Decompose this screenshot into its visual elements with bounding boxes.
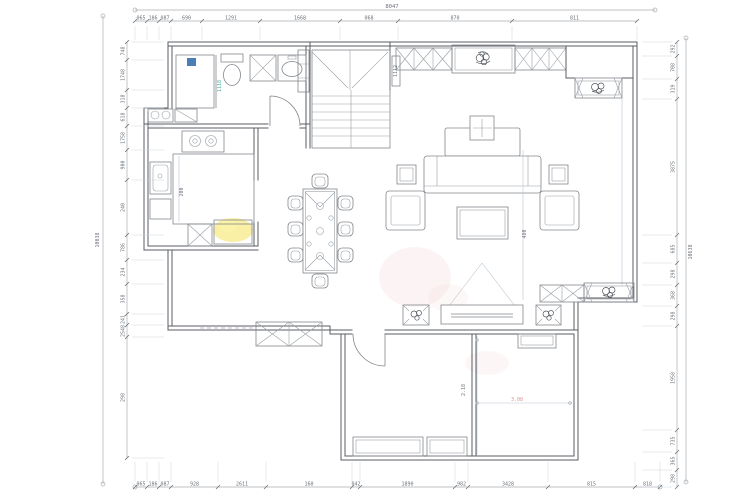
dim-label: 292 <box>671 44 677 53</box>
dim-label: 815 <box>587 482 596 488</box>
dim-label: 735 <box>671 436 677 445</box>
toilet-icon <box>221 54 243 86</box>
dim-label: 318 <box>121 94 127 103</box>
dim-label: 186 <box>148 482 157 488</box>
kitchen-cabinet-x <box>188 224 212 246</box>
armchair <box>386 191 425 230</box>
kitchen-sink-icon <box>150 162 171 194</box>
dim-label: 870 <box>450 16 459 22</box>
highlight-yellow <box>213 218 253 242</box>
laundry-pair-icon <box>148 109 197 122</box>
walls <box>144 42 637 460</box>
dim-label: 065 <box>136 482 145 488</box>
dim-label: 241 <box>121 315 127 324</box>
dim-label: 618 <box>121 112 127 121</box>
dimension-bottom: 065186087928261116004218909823428815818 <box>133 462 662 489</box>
bottom-right-window-band <box>540 283 634 302</box>
bay-window-plant <box>452 45 515 73</box>
basin-icon <box>278 55 306 81</box>
dim-label: 368 <box>671 291 677 300</box>
dim-label: 3428 <box>502 482 514 488</box>
shower-drain-icon <box>187 58 196 66</box>
hall-closet <box>298 50 309 92</box>
dim-label: 900 <box>121 160 127 169</box>
tv-plant-box <box>403 305 429 325</box>
dim-label: 786 <box>121 243 127 252</box>
dim-label: 160 <box>304 482 313 488</box>
coffee-table <box>457 207 508 239</box>
dim-label: 1890 <box>401 482 413 488</box>
dim-label: 365 <box>671 456 677 465</box>
dim-left-overall: 10038 <box>95 232 101 247</box>
dim-living-width: 480 <box>522 229 528 238</box>
dim-label: 298 <box>671 474 677 483</box>
dim-label: 708 <box>671 63 677 72</box>
dining-table <box>288 174 353 288</box>
dim-label: 1748 <box>121 69 127 81</box>
dim-label: 811 <box>570 16 579 22</box>
dim-label: 2611 <box>236 482 248 488</box>
kitchen-cabinet <box>150 199 171 219</box>
dim-label: 1758 <box>121 132 127 144</box>
dim-top-overall: 8047 <box>385 4 398 10</box>
dimension-right: 10638 2927083193875685298368298195873536… <box>642 36 694 489</box>
armchair <box>540 191 579 230</box>
bathroom-door-arc <box>270 96 300 126</box>
dim-label: 186 <box>148 16 157 22</box>
plant-icon <box>411 311 422 321</box>
corner-plant-box <box>584 283 634 302</box>
sofa <box>424 156 541 193</box>
dim-label: 298 <box>671 269 677 278</box>
dim-label: 298 <box>671 311 677 320</box>
window-x <box>396 48 452 70</box>
dim-bedroom-width: 3.08 <box>511 397 523 403</box>
dim-kitchen-depth: 200 <box>179 187 185 196</box>
dim-label: 358 <box>121 294 127 303</box>
dim-label: 065 <box>136 16 145 22</box>
plant-icon <box>476 52 490 65</box>
dim-label: 748 <box>121 46 127 55</box>
plant-icon <box>603 287 616 298</box>
bath-cabinet-x <box>250 55 276 81</box>
floor-plan-svg: 200 1118 1112 480 2.18 3.08 8047 0651860… <box>0 0 740 500</box>
dimension-top: 8047 06518608769012911668068870811 <box>133 4 657 40</box>
sofa-set <box>386 116 579 239</box>
dim-right-overall: 10638 <box>688 244 694 259</box>
dim-label: 1958 <box>671 372 677 384</box>
top-window-band <box>396 45 622 98</box>
dim-label: 1291 <box>225 16 237 22</box>
dim-label: 042 <box>351 482 360 488</box>
tv-cabinet <box>441 305 523 324</box>
dim-label: 690 <box>182 16 191 22</box>
dim-label: 685 <box>671 244 677 253</box>
dim-label: 240 <box>121 203 127 212</box>
dim-stair-well: 1112 <box>393 65 399 77</box>
dim-label: 068 <box>364 16 373 22</box>
dim-shower-screen: 1118 <box>217 80 223 92</box>
plant-icon <box>592 83 605 94</box>
dim-label: 3875 <box>671 161 677 173</box>
dim-label: 087 <box>160 16 169 22</box>
stove-icon <box>182 131 224 152</box>
kitchen-island <box>173 154 254 224</box>
tv-plant-box <box>536 305 561 325</box>
dim-bedroom-height: 2.18 <box>461 384 467 396</box>
dim-label: 234 <box>121 267 127 276</box>
table-top <box>303 189 337 273</box>
dim-label: 087 <box>160 482 169 488</box>
dim-label: 1668 <box>294 16 306 22</box>
dim-label: 928 <box>190 482 199 488</box>
corner-plant-box <box>575 78 622 98</box>
floor-plan-canvas: 200 1118 1112 480 2.18 3.08 8047 0651860… <box>0 0 740 500</box>
dim-label: 298 <box>121 393 127 402</box>
room-door-arc <box>353 334 385 366</box>
dim-label: 982 <box>457 482 466 488</box>
stairs <box>312 50 400 148</box>
dim-label: 818 <box>643 482 652 488</box>
dim-label: 2548 <box>121 325 127 337</box>
dim-label: 319 <box>671 84 677 93</box>
plant-icon <box>543 311 554 321</box>
